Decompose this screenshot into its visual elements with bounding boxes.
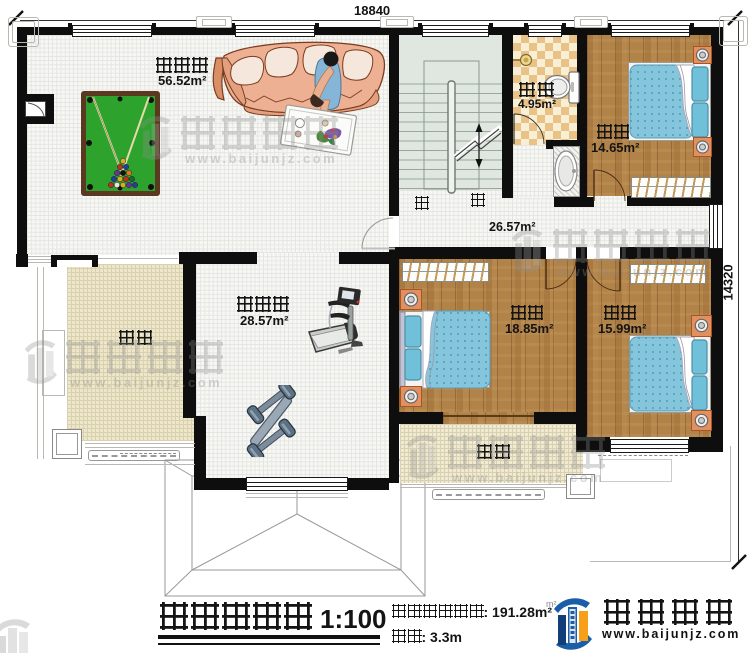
svg-text:m²: m² <box>546 599 557 609</box>
